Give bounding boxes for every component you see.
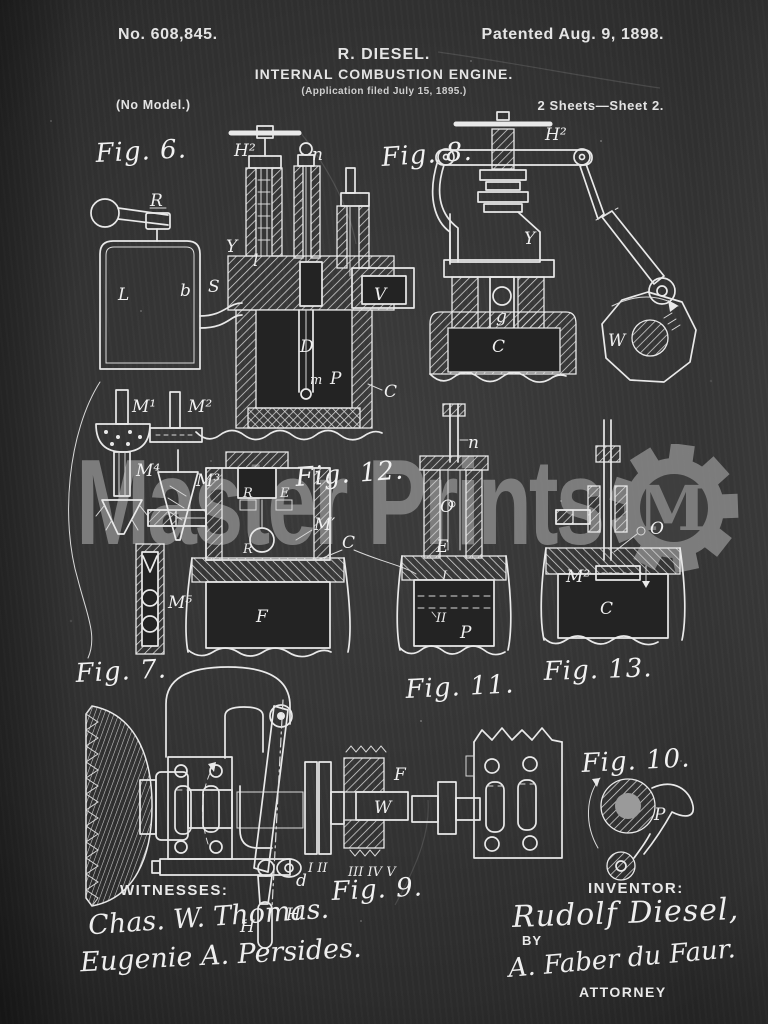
figure-8-drawing: Fig. 8. H² Y xyxy=(379,112,696,382)
fig7-part-M4: M⁴ xyxy=(135,461,160,481)
fig9-part-F: F xyxy=(393,765,407,785)
figure-7-drawing: M¹ M² M⁴ M³ M⁵ F xyxy=(69,382,221,689)
fig8-label: Fig. 8. xyxy=(379,137,473,173)
witnesses-label: WITNESSES: xyxy=(120,882,228,899)
fig6-part-H2: H² xyxy=(233,141,256,161)
fig13-part-O: O xyxy=(650,519,664,539)
inventor-line: R. DIESEL. xyxy=(0,46,768,64)
application-line: (Application filed July 15, 1895.) xyxy=(0,86,768,97)
fig9-label: Fig. 9. xyxy=(330,872,424,907)
fig12-part-E: E xyxy=(279,486,290,501)
patent-print-poster: Master Prints M No. 608,845. Patented Au… xyxy=(0,0,768,1024)
fig6-part-C: C xyxy=(384,382,397,402)
fig7-label: Fig. 7. xyxy=(74,654,168,689)
fig7-part-M2: M² xyxy=(187,397,212,417)
fig6-part-V: V xyxy=(374,285,388,305)
fig6-part-n: n xyxy=(312,145,323,165)
fig12-part-R2: R xyxy=(242,542,253,557)
fig11-part-n: n xyxy=(468,433,479,453)
sheet-info: 2 Sheets—Sheet 2. xyxy=(537,98,664,113)
patent-number: No. 608,845. xyxy=(118,26,218,44)
fig8-part-W: W xyxy=(608,331,627,351)
fig12-part-F: F xyxy=(255,607,269,627)
fig7-part-M5: M⁵ xyxy=(167,593,192,613)
figure-12-drawing: Fig. 12. R E R M′ C xyxy=(148,452,416,657)
fig9-part-I-II: I II xyxy=(307,861,328,876)
no-model-note: (No Model.) xyxy=(116,98,191,112)
fig12-part-Mp: M′ xyxy=(313,515,335,535)
fig11-part-O: O xyxy=(440,497,454,517)
fig11-part-P: P xyxy=(459,623,472,643)
fig9-part-d: d xyxy=(296,871,307,891)
fig13-part-M2: M² xyxy=(565,567,590,587)
fig6-part-R: R xyxy=(149,191,163,211)
fig6-part-b: b xyxy=(180,281,191,301)
figure-6-drawing: Fig. 6. R L S l H² xyxy=(91,126,414,440)
fig8-part-C: C xyxy=(492,337,505,357)
fig6-part-D: D xyxy=(299,337,314,357)
fig11-part-II: II xyxy=(435,611,447,626)
fig11-part-E: E xyxy=(435,537,449,557)
patent-date: Patented Aug. 9, 1898. xyxy=(482,26,664,44)
by-label: BY xyxy=(522,933,542,948)
figure-13-drawing: O M² C Fig. 13. xyxy=(541,420,685,687)
fig12-part-R: R xyxy=(242,486,253,501)
fig10-label: Fig. 10. xyxy=(580,743,691,779)
fig10-part-P: P xyxy=(653,805,666,825)
figure-10-drawing: Fig. 10. P xyxy=(580,743,693,880)
fig13-label: Fig. 13. xyxy=(542,653,653,687)
fig11-part-I: I xyxy=(441,569,448,584)
figure-11-drawing: n O E I II P Fig. 11. xyxy=(397,404,515,705)
fig7-part-M1: M¹ xyxy=(131,397,156,417)
fig6-part-Y: Y xyxy=(226,237,239,257)
fig6-part-m: m xyxy=(310,373,322,388)
fig6-label: Fig. 6. xyxy=(94,134,188,169)
fig8-part-Y: Y xyxy=(524,229,537,249)
fig12-part-C: C xyxy=(342,533,355,553)
attorney-label: ATTORNEY xyxy=(579,984,667,1000)
fig6-part-S: S xyxy=(208,277,220,297)
fig8-part-H2: H² xyxy=(544,125,567,145)
fig6-part-L: L xyxy=(117,285,129,305)
patent-drawing-canvas: Fig. 6. R L S l H² xyxy=(0,0,768,1024)
fig13-part-C: C xyxy=(600,599,613,619)
fig6-part-P: P xyxy=(329,369,342,389)
fig12-label: Fig. 12. xyxy=(293,455,405,493)
invention-title: INTERNAL COMBUSTION ENGINE. xyxy=(0,66,768,82)
fig9-part-W: W xyxy=(374,798,393,818)
fig11-label: Fig. 11. xyxy=(404,669,515,705)
